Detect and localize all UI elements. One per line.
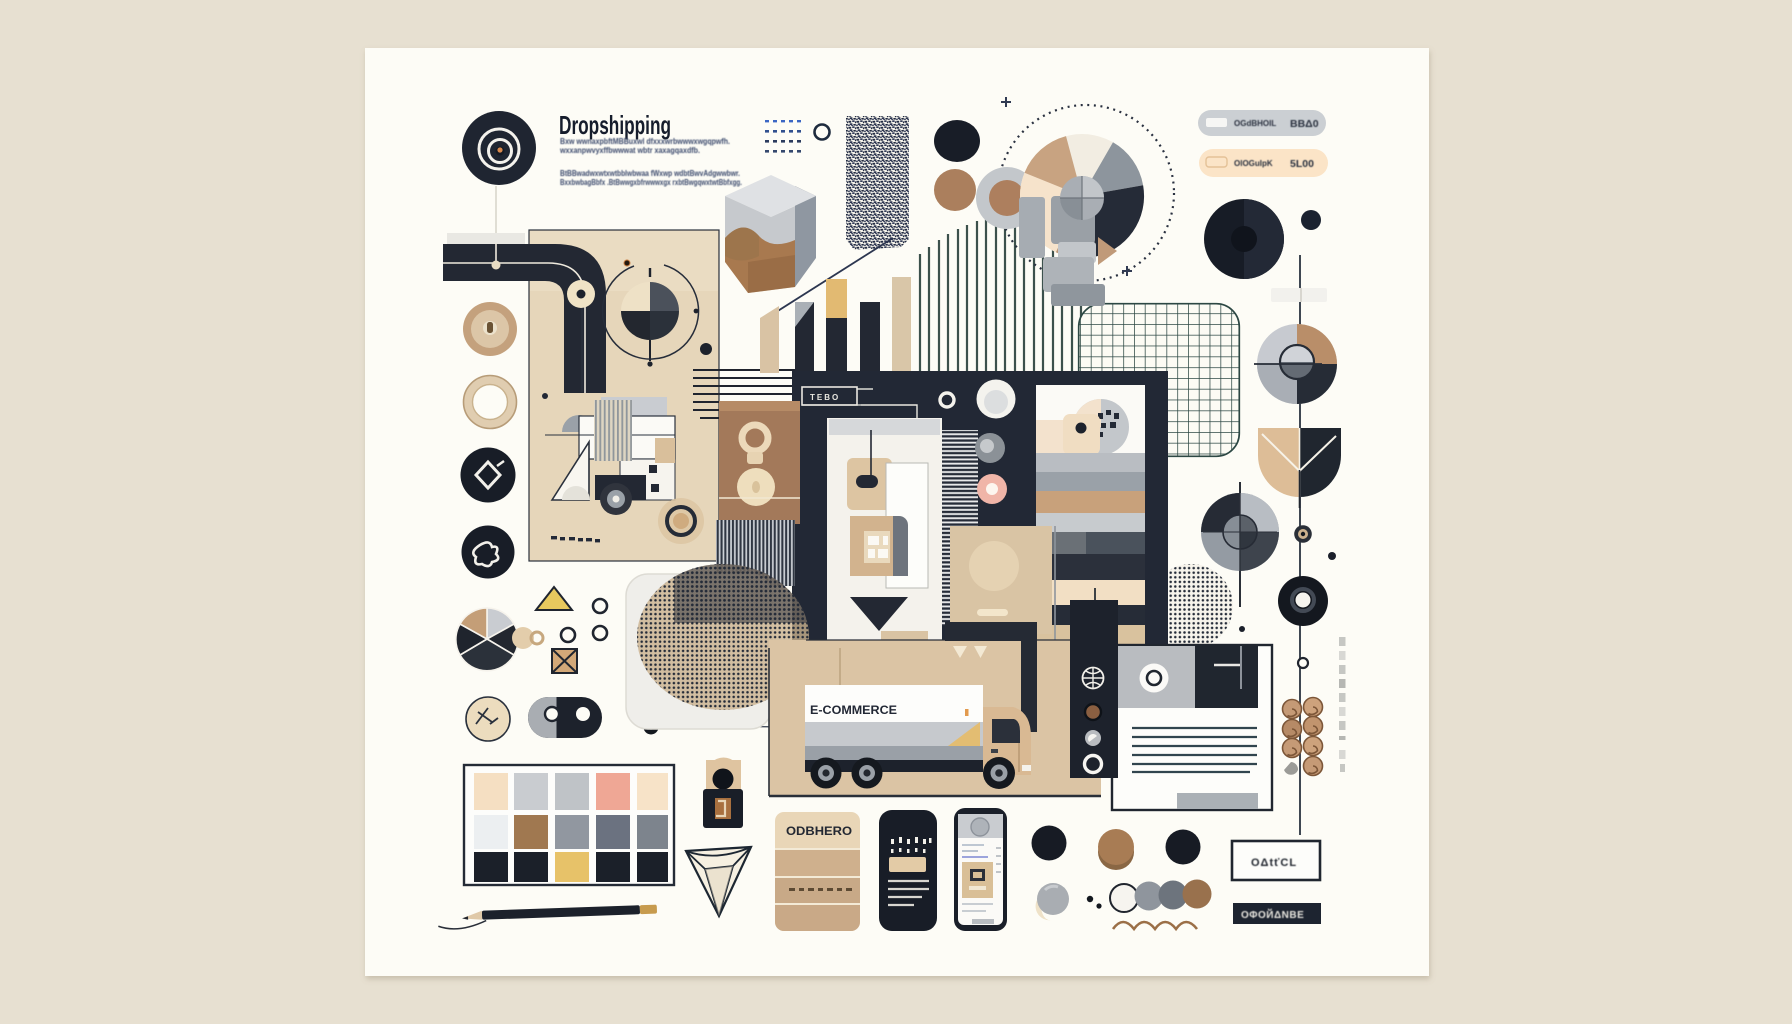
svg-text:OΦOЙΔNBE: OΦOЙΔNBE [1241,908,1304,921]
svg-text:Bxw wwnaxpbftMBBuxwl dfxxxwrbw: Bxw wwnaxpbftMBBuxwl dfxxxwrbwwwxwgqpwfh… [560,137,730,146]
svg-text:E-COMMERCE: E-COMMERCE [810,703,897,717]
svg-text:BBΔ0: BBΔ0 [1290,118,1319,130]
svg-text:OΔtťCL: OΔtťCL [1251,857,1297,869]
svg-text:TEBO: TEBO [810,393,840,402]
svg-text:Dropshipping: Dropshipping [559,110,671,140]
svg-text:BxxbwbagBbfx .BtBwwgxbfrwwwxgx: BxxbwbagBbfx .BtBwwgxbfrwwwxgx rxbtBwgqw… [560,178,742,187]
svg-text:5L00: 5L00 [1290,158,1314,170]
svg-text:BtBBwadwxwtxwtbblwbwaa fWxwp w: BtBBwadwxwtxwtbblwbwaa fWxwp wdbtBwvAdgw… [560,169,740,178]
svg-text:OGdBHOIL: OGdBHOIL [1234,119,1276,128]
svg-text:ODBHERO: ODBHERO [786,826,852,838]
svg-text:wxxanpwvyxffbwwwat wbtr xaxagq: wxxanpwvyxffbwwwat wbtr xaxagqaxdfb. [559,146,700,155]
svg-text:OlOGuIpK: OlOGuIpK [1234,159,1273,168]
